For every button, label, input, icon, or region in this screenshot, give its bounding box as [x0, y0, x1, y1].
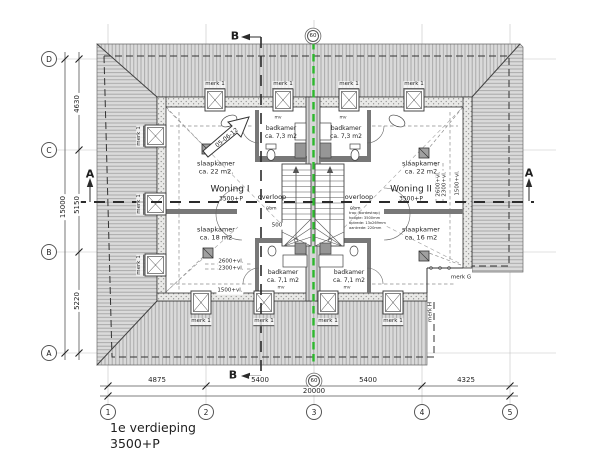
merk-1-label: merk 1 — [272, 81, 293, 89]
section-a-left: A — [86, 167, 95, 180]
merk-1-label: merk 1 — [403, 81, 424, 89]
room-bedroom-small-1: slaapkamerca. 18 m2 — [197, 226, 235, 243]
grid-col-3: 3 — [306, 404, 322, 420]
bathtub — [283, 255, 307, 267]
dim-500: 500 — [271, 223, 284, 230]
room-bathroom-bottom-2: badkamerca. 7,1 m2 — [333, 269, 365, 285]
dim-left-3: 5220 — [73, 290, 81, 312]
shower — [320, 143, 331, 158]
unit-1-name: Woning I — [210, 185, 249, 196]
drawing-title: 1e verdieping 3500+P — [110, 420, 196, 451]
grid-row-A: A — [41, 345, 57, 361]
mv-marker: mv — [277, 285, 284, 290]
merk-g-label: merk G — [451, 275, 471, 282]
staircase-right — [315, 164, 344, 246]
grid-axis-60-bottom: 60 — [308, 375, 320, 387]
drawing-title-line1: 1e verdieping — [110, 420, 196, 436]
merk-1-label: merk 1 — [317, 318, 338, 326]
shower — [320, 243, 331, 254]
shower — [295, 143, 306, 158]
mv-marker: mv — [339, 115, 346, 120]
merk-1-label: merk 1 — [338, 81, 359, 89]
section-a-right: A — [525, 166, 534, 179]
room-bathroom-top-1: badkamerca. 7,3 m2 — [265, 125, 297, 141]
mv-marker: mv — [274, 115, 281, 120]
room-bedroom-large-1: slaapkamerca. 22 m2. — [197, 160, 235, 177]
dim-bottom-2: 5400 — [249, 376, 271, 384]
unit-1-level: 3500+P — [219, 195, 243, 202]
landing-1: overloop — [258, 194, 286, 202]
grid-row-B: B — [41, 244, 57, 260]
merk-1-label: merk 1 — [136, 193, 144, 214]
grid-col-2: 2 — [198, 404, 214, 420]
dim-bottom-4: 4325 — [455, 376, 477, 384]
unit-2-name: Woning II — [390, 185, 432, 196]
merk-1-label: merk 1 — [382, 318, 403, 326]
grid-col-4: 4 — [414, 404, 430, 420]
merk-1-label: merk 1 — [136, 254, 144, 275]
landing-2: overloop — [345, 194, 373, 202]
bathtub — [319, 255, 343, 267]
grid-col-1: 1 — [100, 404, 116, 420]
height-2600-1: 2600+vl. — [217, 259, 244, 266]
grid-axis-60-top: 60 — [307, 30, 319, 42]
unit-2-level: 3500+P — [399, 195, 423, 202]
drawing-title-line2: 3500+P — [110, 436, 196, 452]
shower — [295, 243, 306, 254]
section-b-top: B — [231, 29, 239, 42]
floor-plan-page: D C B A 1 2 3 4 5 60 60 4630 5150 5220 1… — [0, 0, 600, 470]
merk-1-label: merk 1 — [253, 318, 274, 326]
mv-marker: mv — [343, 285, 350, 290]
staircase-left — [282, 164, 311, 246]
height-2300-2: 2300+vl. — [442, 170, 449, 197]
room-bathroom-top-2: badkamerca. 7,3 m2 — [330, 125, 362, 141]
room-bathroom-bottom-1: badkamerca. 7,1 m2 — [267, 269, 299, 285]
merk-1-label: merk 1 — [190, 318, 211, 326]
section-b-bottom: B — [229, 368, 237, 381]
dim-left-1: 4630 — [73, 93, 81, 115]
height-1500-1: 1500+vl. — [216, 288, 243, 295]
room-bedroom-large-2: slaapkamerca. 22 m2 — [402, 160, 440, 177]
dim-bottom-total: 20000 — [301, 387, 327, 395]
grid-row-D: D — [41, 51, 57, 67]
room-bedroom-small-2: slaapkamerca. 16 m2 — [402, 226, 440, 243]
dim-bottom-3: 5400 — [357, 376, 379, 384]
grid-row-C: C — [41, 142, 57, 158]
merk-1-label: merk 1 — [204, 81, 225, 89]
bm-marker-1: ⊖bm — [265, 206, 276, 211]
merk-1-label: merk 1 — [136, 125, 144, 146]
floor-plan-drawing — [0, 0, 600, 470]
merk-h-label: merk H — [428, 302, 435, 322]
dim-left-total: 15000 — [59, 194, 67, 220]
height-2300-1: 2300+vl. — [217, 266, 244, 273]
dim-bottom-1: 4875 — [146, 376, 168, 384]
height-1500-2: 1500+vl. — [455, 169, 462, 196]
stair-note: trap (bordestrap) hoogte: 3500mm optrede… — [349, 211, 386, 230]
dim-left-2: 5150 — [73, 194, 81, 216]
grid-col-5: 5 — [502, 404, 518, 420]
